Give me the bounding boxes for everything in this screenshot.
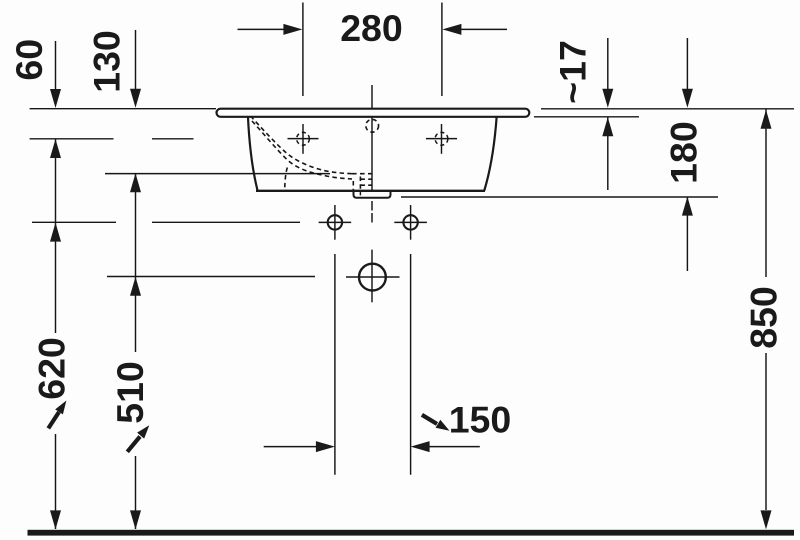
svg-text:280: 280 [340,7,403,49]
svg-text:180: 180 [663,121,705,184]
svg-text:130: 130 [86,30,128,93]
svg-text:850: 850 [743,286,785,349]
svg-text:60: 60 [8,39,50,81]
svg-text:~17: ~17 [552,40,594,104]
svg-text:150: 150 [449,399,512,441]
svg-text:510: 510 [109,361,151,424]
svg-text:620: 620 [31,337,73,400]
